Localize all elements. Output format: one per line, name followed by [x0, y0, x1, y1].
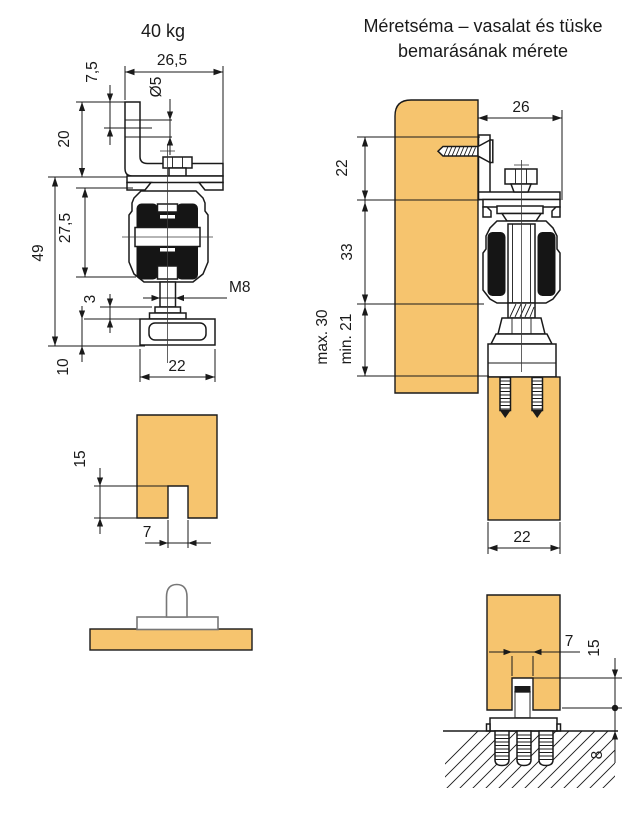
hex-nut-side: [505, 169, 537, 192]
dim-label: 22: [334, 159, 351, 176]
dim-label: 26,5: [157, 52, 187, 69]
door-screw: [532, 378, 543, 419]
bracket-flange-side: [479, 192, 561, 200]
figure-floor-guide-mounted: 7 15 8: [420, 595, 641, 789]
dim-label: 15: [586, 639, 603, 656]
dim-label: 7,5: [84, 61, 101, 83]
figure-hanger-side: Méretséma – vasalat és tüske bemarásának…: [314, 16, 603, 554]
dim-overall-height: 49: [30, 177, 145, 346]
dim-label: 26: [512, 99, 529, 116]
guide-base: [137, 617, 218, 630]
dim-label: 49: [30, 244, 47, 261]
guide-base-plate: [487, 718, 561, 731]
dim-hole-diameter: Ø5: [148, 77, 173, 155]
door-panel: [488, 377, 560, 520]
dim-label: 8: [589, 751, 606, 760]
figure-hanger-front: 40 kg: [30, 21, 251, 382]
dim-label: 22: [168, 358, 185, 375]
guide-pin-cap: [515, 686, 531, 693]
anchor-screw: [495, 731, 509, 766]
dim-label: 7: [143, 524, 152, 541]
anchor-screw: [539, 731, 553, 766]
door-screw: [500, 378, 511, 419]
figure-title-line2: bemarásának mérete: [398, 41, 568, 61]
dim-plate-height: 10: [55, 306, 85, 376]
dim-label: 7: [565, 633, 574, 650]
floor-guide: [90, 585, 252, 651]
dim-label: max. 30: [314, 309, 331, 365]
adjuster-stack: [488, 303, 556, 377]
dim-label: 15: [72, 450, 89, 467]
roller-side-left: [488, 232, 506, 296]
figure-groove-detail: 15 7: [72, 415, 252, 650]
wall-panel: [395, 100, 478, 393]
dim-housing-height: 27,5: [57, 188, 136, 277]
threshold-strip: [90, 629, 252, 650]
figure-title-weight: 40 kg: [141, 21, 185, 41]
guide-pin: [515, 692, 530, 718]
mounting-plate: [140, 319, 215, 345]
figure-title-line1: Méretséma – vasalat és tüske: [363, 16, 602, 36]
dim-label: 22: [513, 529, 530, 546]
dim-label: M8: [229, 279, 251, 296]
technical-drawing: 40 kg: [0, 0, 641, 828]
dim-plate-width: 22: [140, 349, 215, 382]
guide-pin: [167, 585, 188, 618]
top-rail-profile: [127, 176, 223, 190]
door-panel-grooved: [137, 415, 217, 518]
diagram-page: 40 kg: [0, 0, 641, 828]
dim-label: 33: [339, 243, 356, 260]
dim-label: min. 21: [338, 314, 355, 365]
dim-label: 10: [55, 358, 72, 376]
dim-groove-width: 7: [143, 520, 211, 548]
dim-hole-offset: 7,5: [76, 61, 127, 145]
dim-label: 27,5: [57, 213, 74, 243]
roller-side-right: [538, 232, 556, 296]
dim-door-thickness: 22: [488, 522, 560, 554]
dim-label: Ø5: [148, 77, 165, 98]
door-plate: [488, 344, 556, 377]
dim-label: 3: [82, 295, 99, 304]
anchor-screw: [517, 731, 531, 766]
dim-bracket-height: 20: [48, 102, 127, 177]
dim-label: 20: [56, 130, 73, 148]
